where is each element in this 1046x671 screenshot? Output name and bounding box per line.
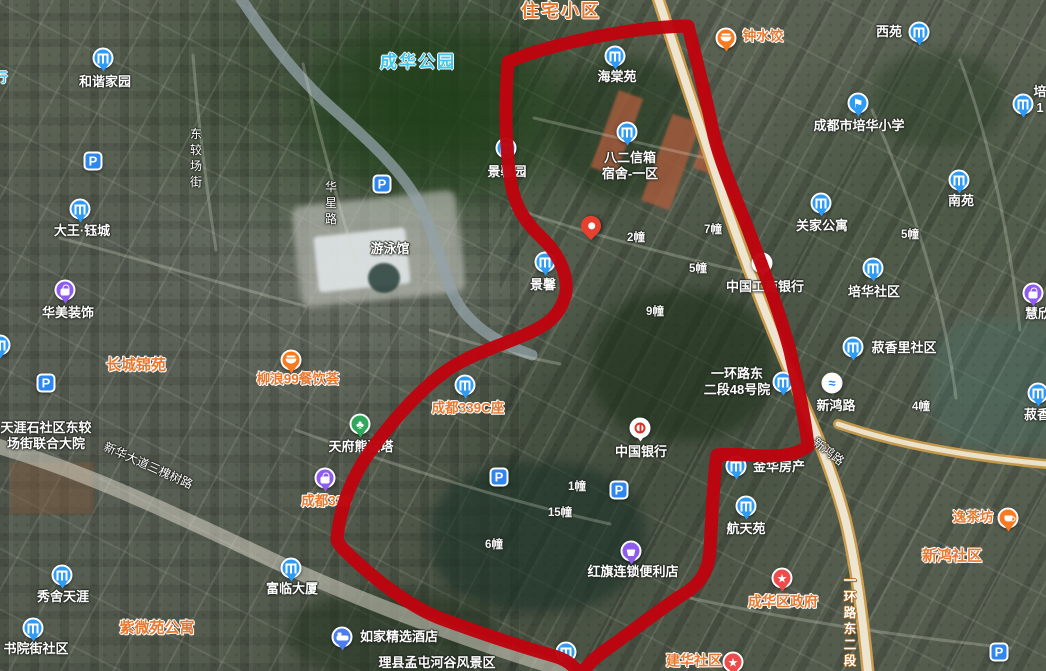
poi-rujia-hotel-label[interactable]: 如家精选酒店 xyxy=(360,629,438,645)
poi-fulin-dasha-icon[interactable] xyxy=(281,558,302,579)
poi-peihua-clipped-icon[interactable] xyxy=(1013,94,1034,115)
parking-1-icon[interactable]: P xyxy=(84,152,103,171)
parking-5-icon[interactable]: P xyxy=(610,481,629,500)
road-yihuanlu-east2-label: 一环路东二段 xyxy=(844,573,857,669)
bldg-6-label: 6幢 xyxy=(485,538,503,552)
poi-liulang99-icon[interactable] xyxy=(281,350,302,371)
poi-yihuanlu-48-label[interactable]: 一环路东二段48号院 xyxy=(704,366,770,399)
bldg-2-label: 2幢 xyxy=(627,231,645,245)
poi-hongqi-store-icon[interactable] xyxy=(621,541,642,562)
area-zhuzhai-xiaoqu-label: 住宅小区 xyxy=(521,0,601,22)
poi-yihuanlu-48-icon[interactable] xyxy=(773,372,794,393)
parking-3-icon[interactable]: P xyxy=(37,374,56,393)
poi-bank-of-china-icon[interactable] xyxy=(630,418,651,439)
poi-yichafang-icon[interactable] xyxy=(998,508,1019,529)
map-canvas[interactable]: 住宅小区成华公园行和谐家园海棠苑钟水饺西苑⚑成都市培华小学培1景馨园八二信箱宿舍… xyxy=(0,0,1046,671)
parking-6-icon[interactable]: P xyxy=(990,643,1009,662)
poi-lixian-scenic-label[interactable]: 理县孟屯河谷风景区 xyxy=(378,655,495,671)
poi-hexie-jiayuan-icon[interactable] xyxy=(93,48,114,69)
area-chenghua-park-label: 成华公园 xyxy=(380,51,456,72)
poi-panda-tower-icon[interactable]: ♣ xyxy=(350,414,371,435)
poi-chengdu339c-icon[interactable] xyxy=(455,375,476,396)
poi-baer-xinxiang-label[interactable]: 八二信箱宿舍-一区 xyxy=(602,150,658,183)
poi-peihua-primary-school-icon[interactable]: ⚑ xyxy=(848,93,869,114)
satellite-terrain xyxy=(0,0,1046,671)
poi-xiushe-tianya-icon[interactable] xyxy=(52,565,73,586)
parking-4-icon[interactable]: P xyxy=(490,468,509,487)
poi-jinhua-fangchan-icon[interactable] xyxy=(726,456,747,477)
poi-chenghua-government-icon[interactable]: ★ xyxy=(772,568,793,589)
poi-zhongshuijiao-label[interactable]: 钟水饺 xyxy=(743,29,784,46)
poi-huixin-clipped-icon[interactable] xyxy=(1023,283,1044,304)
poi-jinhua-fangchan-label[interactable]: 金华房产 xyxy=(753,459,805,475)
poi-huamei-zhuangshi-icon[interactable] xyxy=(55,280,76,301)
poi-shuxiangli-shequ-label[interactable]: 菽香里社区 xyxy=(871,340,936,356)
poi-xinhong-overpass-icon[interactable]: ≈ xyxy=(822,373,843,394)
poi-tianyashi-dayuan-label[interactable]: 天涯石社区东较场街联合大院 xyxy=(0,420,91,453)
poi-baer-xinxiang-icon[interactable] xyxy=(617,122,638,143)
poi-rujia-hotel-icon[interactable] xyxy=(332,627,353,648)
poi-jianhua-shequ-label[interactable]: 建华社区 xyxy=(666,652,722,670)
poi-youyongguan-label[interactable]: 游泳馆 xyxy=(370,241,409,257)
poi-hangtian-yuan-icon[interactable] xyxy=(736,496,757,517)
poi-jingxin-clipped-icon[interactable] xyxy=(535,252,556,273)
bldg-15-label: 15幢 xyxy=(548,506,572,520)
clipped-cyan-label-label: 行 xyxy=(0,70,8,86)
poi-nanyuan-icon[interactable] xyxy=(949,170,970,191)
poi-xinhong-overpass-label[interactable]: 新鸿路 xyxy=(816,398,855,414)
road-huaxing-label: 华星路 xyxy=(325,179,337,227)
poi-peihua-shequ-icon[interactable] xyxy=(863,258,884,279)
poi-xiyuan-icon[interactable] xyxy=(909,22,930,43)
poi-guanjia-gongyu-icon[interactable] xyxy=(811,193,832,214)
poi-shuyuanjie-shequ-icon[interactable] xyxy=(23,618,44,639)
area-xinhong-shequ-label: 新鸿社区 xyxy=(922,548,982,567)
poi-chengdu339-icon[interactable] xyxy=(315,468,336,489)
poi-yichafang-label[interactable]: 逸茶坊 xyxy=(953,510,994,527)
poi-lixian-scenic-icon[interactable] xyxy=(556,642,577,663)
road-dongjiaochang-label: 东较场街 xyxy=(190,126,202,190)
poi-jianhua-shequ-icon[interactable]: ★ xyxy=(723,652,744,671)
area-changcheng-jinyuan-label: 长城锦苑 xyxy=(106,357,166,376)
poi-shuxiang-clipped-icon[interactable] xyxy=(1028,383,1046,404)
bldg-5-inner-label: 5幢 xyxy=(689,262,707,276)
poi-dawang-yucheng-icon[interactable] xyxy=(70,199,91,220)
parking-2-icon[interactable]: P xyxy=(373,175,392,194)
poi-icbc-bank-icon[interactable] xyxy=(752,253,773,274)
poi-peihua-clipped-label[interactable]: 培1 xyxy=(1033,84,1046,117)
poi-haitang-yuan-icon[interactable] xyxy=(605,46,626,67)
poi-xiyuan-label[interactable]: 西苑 xyxy=(876,24,902,40)
bldg-1-label: 1幢 xyxy=(568,480,586,494)
bldg-5-label: 5幢 xyxy=(901,228,919,242)
area-ziweiyuan-gongyu-label: 紫微苑公寓 xyxy=(119,620,194,639)
poi-zhongshuijiao-icon[interactable] xyxy=(716,28,737,49)
poi-liulang99-label[interactable]: 柳浪99餐饮荟 xyxy=(257,372,340,389)
bldg-7-label: 7幢 xyxy=(704,223,722,237)
poi-jingxin-yuan-icon[interactable] xyxy=(496,138,517,159)
bldg-4-label: 4幢 xyxy=(912,400,930,414)
bldg-9-label: 9幢 xyxy=(646,305,664,319)
poi-shuxiangli-shequ-icon[interactable] xyxy=(843,337,864,358)
